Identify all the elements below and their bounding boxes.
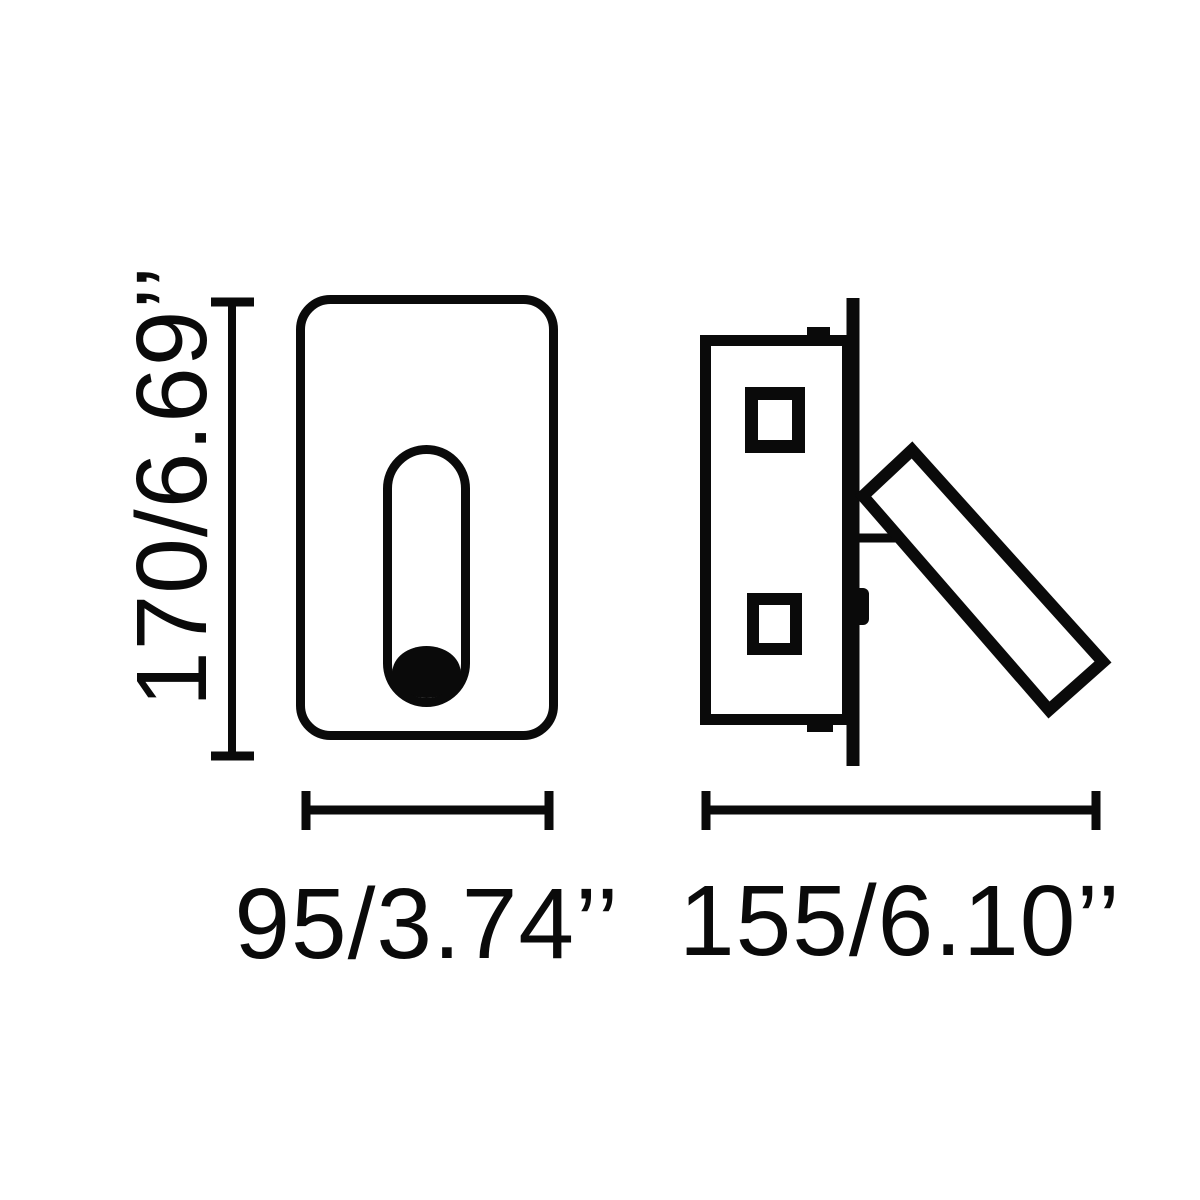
- box-cutout-top: [752, 394, 799, 447]
- dimension-diagram: 170/6.69’’ 95/3.74’’ 155/6.10’’: [0, 0, 1200, 1200]
- mounting-tab-bottom: [807, 719, 833, 732]
- box-cutout-bottom: [753, 599, 796, 649]
- diagram-drawing: 170/6.69’’ 95/3.74’’ 155/6.10’’: [0, 0, 1200, 1200]
- width-dimension: 95/3.74’’: [234, 791, 619, 980]
- height-dimension-label: 170/6.69’’: [116, 265, 228, 707]
- side-view: [706, 298, 1104, 766]
- height-dimension: 170/6.69’’: [116, 265, 254, 756]
- reading-arm: [863, 450, 1103, 710]
- width-dimension-label: 95/3.74’’: [234, 868, 619, 980]
- mounting-tab-top: [807, 327, 830, 340]
- depth-dimension: 155/6.10’’: [679, 791, 1121, 977]
- front-view: [301, 300, 554, 736]
- depth-dimension-label: 155/6.10’’: [679, 865, 1121, 977]
